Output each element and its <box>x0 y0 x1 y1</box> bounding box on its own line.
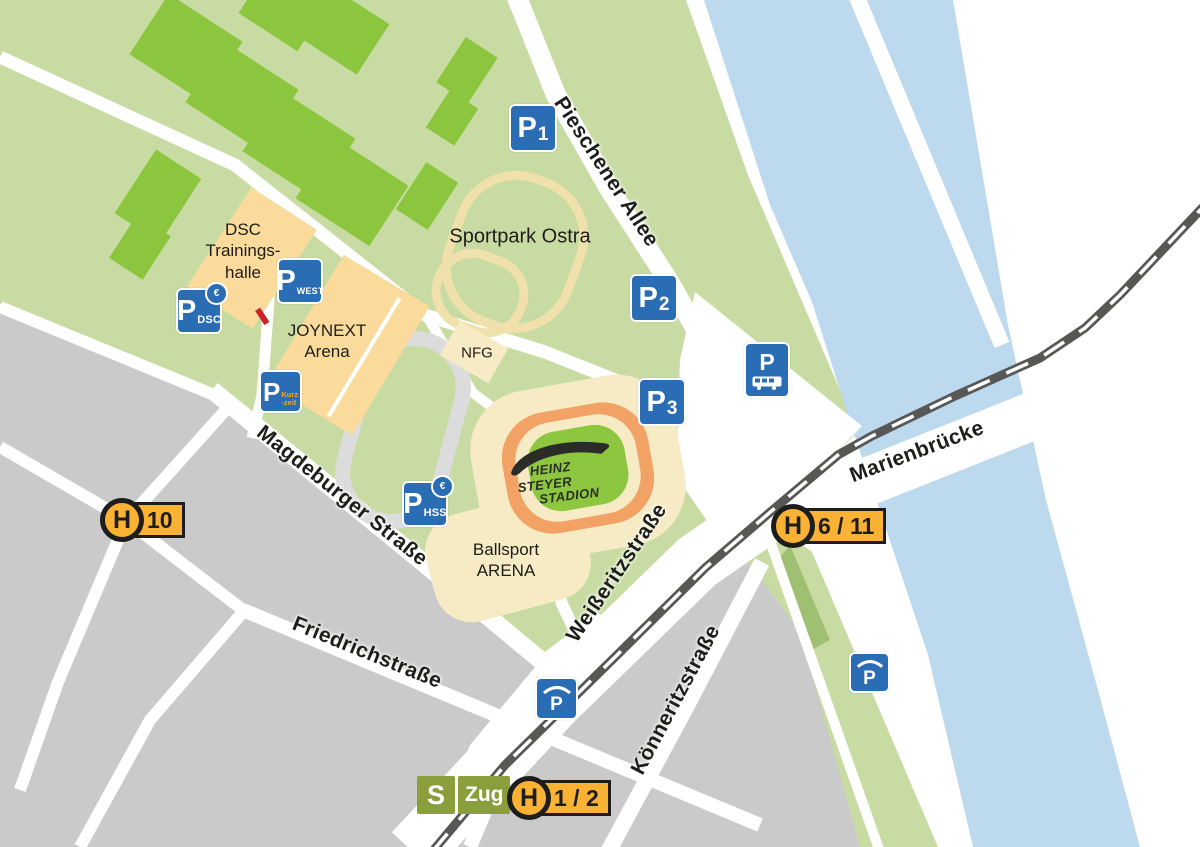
pkurz-sub-line2: -zeit <box>281 399 298 408</box>
pbus-letter: P <box>759 351 774 374</box>
parking-dsc-icon: P DSC € <box>176 288 222 334</box>
tram-stop-1-2: H 1 / 2 <box>507 776 611 820</box>
ballsport-line1: Ballsport <box>473 539 539 560</box>
pgarage1-letter: P <box>550 695 563 714</box>
area-label-sportpark-ostra: Sportpark Ostra <box>449 225 590 250</box>
p3-letter: P <box>647 388 666 417</box>
stadium-logo: HEINZ STEYER STADION <box>510 430 623 510</box>
roof-icon <box>542 683 572 694</box>
ballsport-line2: ARENA <box>473 560 539 581</box>
euro-badge: € <box>431 475 454 498</box>
p2-number: 2 <box>659 294 670 316</box>
parking-west-icon: P WEST <box>277 258 323 304</box>
joynext-line1: JOYNEXT <box>288 320 366 341</box>
dsc-line3: halle <box>206 262 281 283</box>
tram-stop-6-11-lines: 6 / 11 <box>806 508 886 544</box>
sbahn-s-sign: S <box>417 776 455 814</box>
area-label-joynext-arena: JOYNEXT Arena <box>288 320 366 363</box>
roof-icon <box>856 657 884 668</box>
phss-letter: P <box>403 490 422 519</box>
area-label-dsc-trainingshalle: DSC Trainings- halle <box>206 219 281 283</box>
sbahn-stop: S Zug <box>417 776 510 814</box>
pkurz-letter: P <box>263 379 280 405</box>
tram-stop-h-sign: H <box>771 504 815 548</box>
parking-kurzzeit-icon: P Kurz -zeit <box>259 370 302 413</box>
area-label-nfg: NFG <box>461 345 493 364</box>
dsc-line1: DSC <box>206 219 281 240</box>
bus-icon <box>752 376 782 390</box>
parking-bus-icon: P <box>744 342 790 398</box>
p2-letter: P <box>639 284 658 313</box>
parking-p2-icon: P 2 <box>630 274 678 322</box>
dsc-line2: Trainings- <box>206 240 281 261</box>
phss-sub: HSS <box>424 507 447 519</box>
pdsc-letter: P <box>177 297 196 326</box>
pwest-letter: P <box>276 267 295 296</box>
parking-garage-icon-weisseritz: P <box>535 677 578 720</box>
area-label-ballsport-arena: Ballsport ARENA <box>473 539 539 582</box>
tram-stop-1-2-lines: 1 / 2 <box>542 780 611 816</box>
pdsc-sub: DSC <box>197 314 221 326</box>
pkurz-sub: Kurz -zeit <box>281 391 298 408</box>
pgarage2-letter: P <box>863 669 876 688</box>
sbahn-zug-label: Zug <box>458 776 510 814</box>
parking-p1-icon: P 1 <box>509 104 557 152</box>
parking-hss-icon: P HSS € <box>402 481 448 527</box>
tram-stop-6-11: H 6 / 11 <box>771 504 886 548</box>
tram-stop-10: H 10 <box>100 498 185 542</box>
joynext-line2: Arena <box>288 341 366 362</box>
p1-letter: P <box>518 114 537 143</box>
p1-number: 1 <box>538 124 549 146</box>
tram-stop-h-sign: H <box>507 776 551 820</box>
stadium-area-map: Pieschener Allee Magdeburger Straße Frie… <box>0 0 1200 847</box>
euro-badge: € <box>205 282 228 305</box>
pwest-sub: WEST <box>297 286 324 296</box>
tram-stop-h-sign: H <box>100 498 144 542</box>
parking-p3-icon: P 3 <box>638 378 686 426</box>
map-canvas <box>0 0 1200 847</box>
parking-garage-icon-riverbank: P <box>849 652 890 693</box>
p3-number: 3 <box>667 398 678 420</box>
